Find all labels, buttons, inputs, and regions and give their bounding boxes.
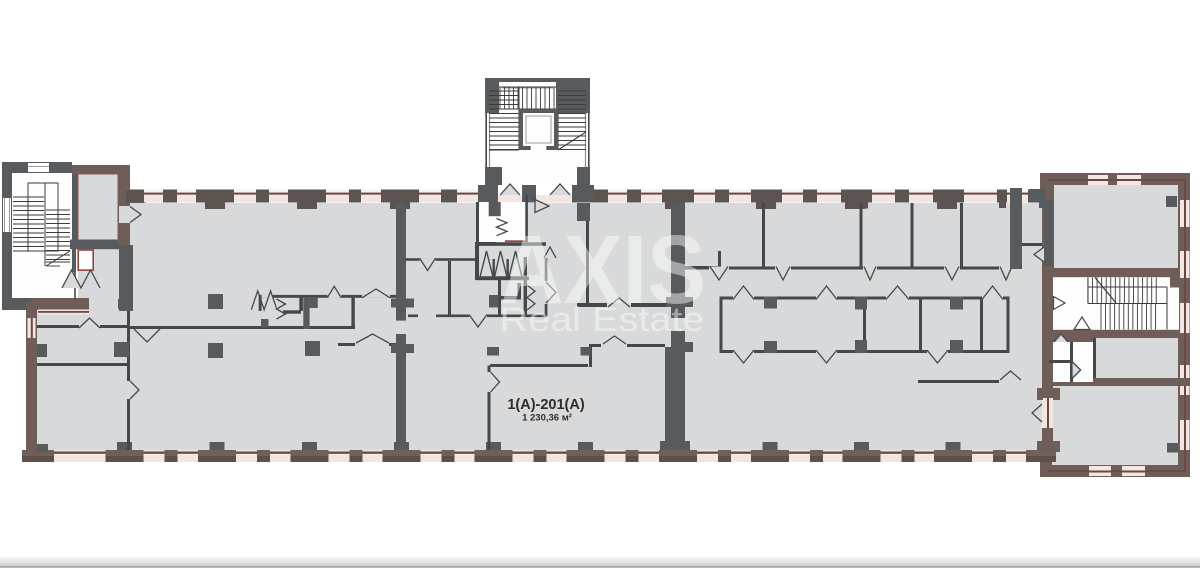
svg-text:1(А)-201(А): 1(А)-201(А) [507, 397, 585, 413]
svg-text:Real Estate: Real Estate [500, 301, 705, 339]
svg-text:1 230,36 м²: 1 230,36 м² [522, 413, 572, 424]
